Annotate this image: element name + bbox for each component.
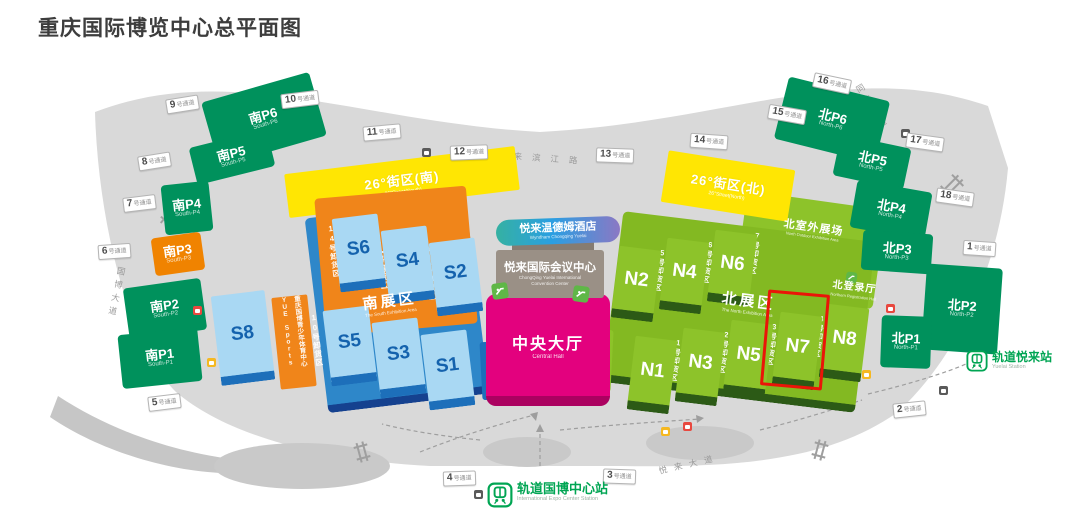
station-yuelai: 轨道悦来站 Yuelai Station: [966, 350, 1052, 372]
escalator-icon: [491, 282, 509, 300]
service-icon: [661, 427, 670, 436]
passage-1: 1号通道: [963, 240, 997, 257]
hall-n3: N3: [675, 328, 726, 407]
restaurant-icon: [683, 422, 692, 431]
restaurant-icon: [886, 304, 895, 313]
hall-n2: N2: [611, 246, 661, 323]
metro-icon: [966, 350, 988, 372]
bus-stop-icon: [422, 148, 431, 157]
passage-12: 12号通道: [450, 144, 489, 160]
hall-s6: S6: [332, 213, 387, 292]
parking-north-p1: 北P1 North-P1: [880, 315, 932, 369]
parking-south-p4: 南P4 South-P4: [161, 181, 214, 236]
passage-4: 4号通道: [443, 470, 476, 486]
service-icon: [207, 358, 216, 367]
service-icon: [862, 370, 871, 379]
parking-south-p3: 南P3 South-P3: [151, 232, 206, 277]
parking-south-p1: 南P1 South-P1: [117, 327, 202, 389]
expo-map: 重庆国际博览中心总平面图 国博大道 悦来滨江路 同茂大道 悦来大道 南P6 So…: [0, 0, 1080, 520]
hall-s8: S8: [211, 290, 276, 386]
hall-s1: S1: [421, 329, 476, 410]
restaurant-icon: [193, 306, 202, 315]
metro-icon: [487, 482, 513, 508]
n7-highlight-box: [760, 289, 830, 390]
passage-6: 6号通道: [98, 243, 132, 260]
parking-north-p3: 北P3 North-P3: [861, 230, 934, 275]
hall-n1: N1: [627, 336, 678, 415]
escalator-icon: [572, 285, 590, 303]
station-expo-center: 轨道国博中心站 International Expo Center Statio…: [487, 482, 608, 508]
parking-north-p2: 北P2 North-P2: [921, 263, 1003, 354]
hall-s3: S3: [372, 317, 427, 398]
bus-stop-icon: [474, 490, 483, 499]
bus-stop-icon: [939, 386, 948, 395]
wyndham-hotel: 悦来温德姆酒店 Wyndham Chongqing Yuelai: [496, 216, 621, 246]
passage-14: 14号通道: [690, 133, 729, 151]
passage-13: 13号通道: [596, 147, 635, 163]
central-hall: 中央大厅 Central Hall: [486, 294, 610, 406]
